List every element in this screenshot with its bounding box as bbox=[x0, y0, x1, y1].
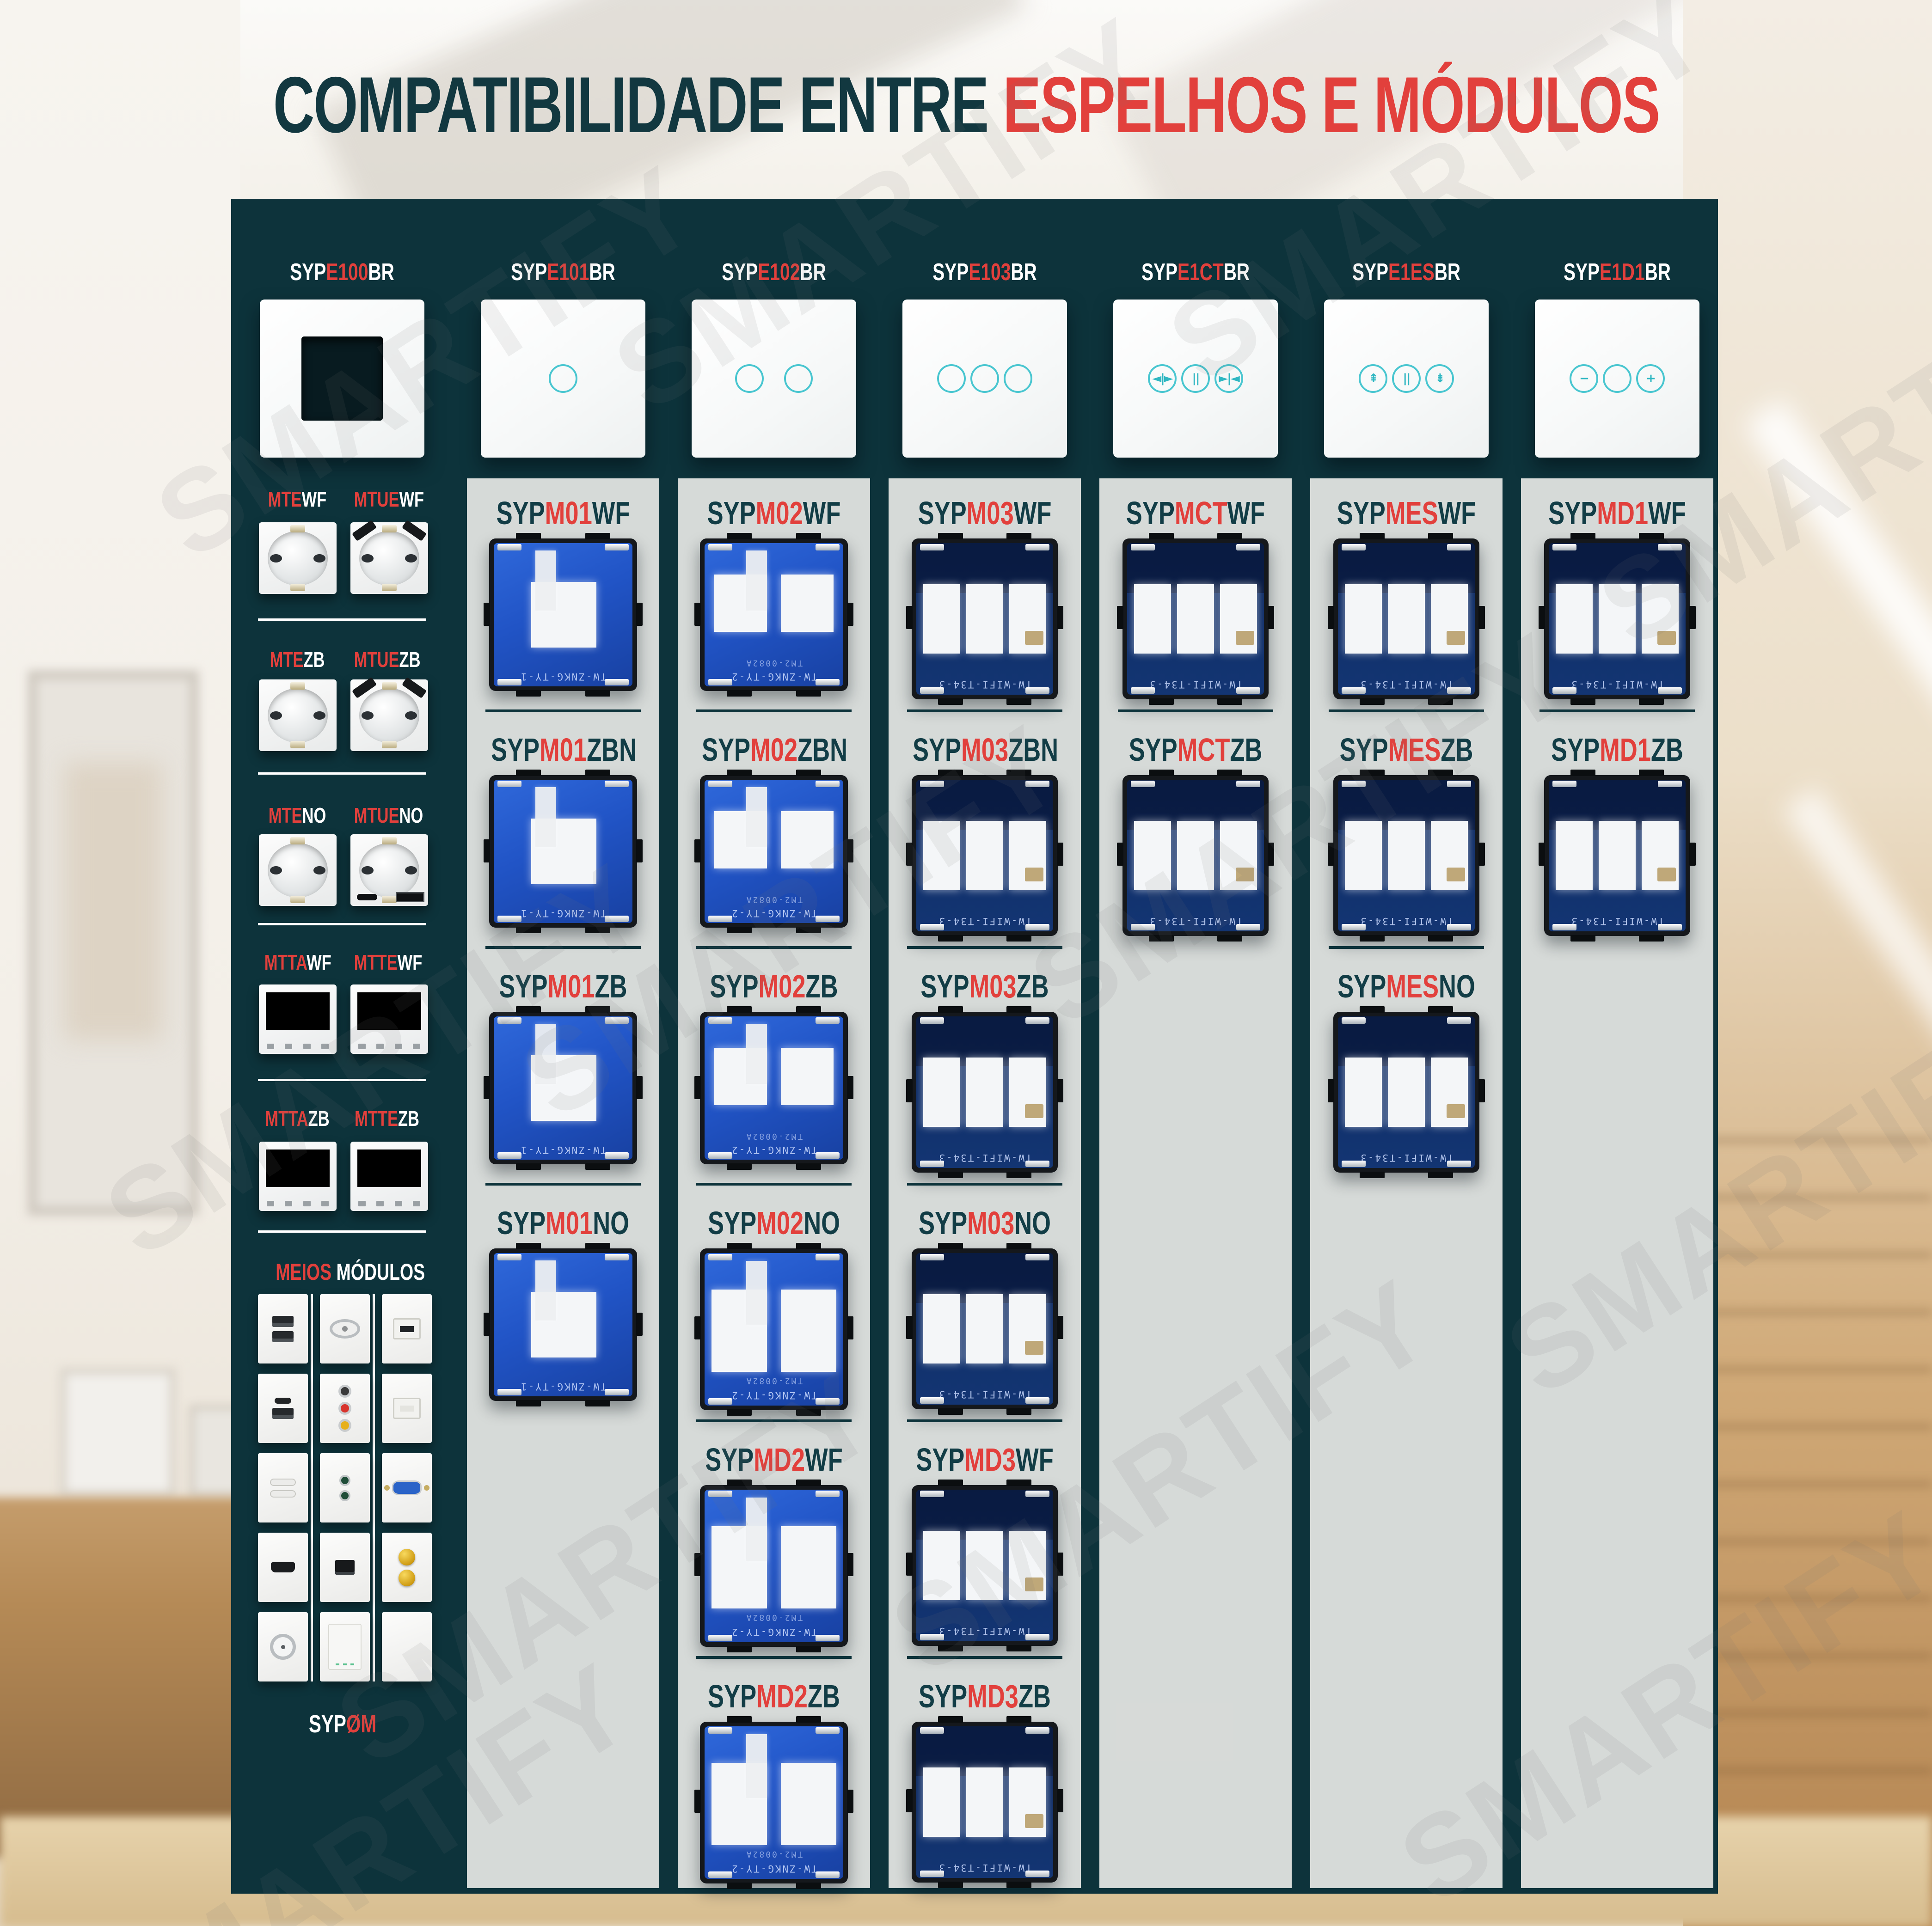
label-prefix: SYP bbox=[920, 968, 969, 1004]
pcb-mount-tab bbox=[484, 1313, 490, 1336]
faceplate-e100 bbox=[260, 300, 424, 458]
sidebar-label: MTUENO bbox=[354, 802, 420, 828]
pcb-corner-clip bbox=[816, 1635, 840, 1641]
pcb-corner-clip bbox=[920, 924, 944, 930]
touch-circle-icon bbox=[735, 364, 764, 393]
label-code: MTE bbox=[270, 648, 304, 672]
pcb-corner-clip bbox=[920, 1871, 944, 1877]
pcb-mount-tab bbox=[1006, 698, 1031, 705]
label-code: MD1 bbox=[1597, 495, 1648, 531]
label-prefix: SYP bbox=[722, 259, 758, 286]
label-code: E101 bbox=[547, 259, 589, 286]
thermostat-button-icon bbox=[285, 1044, 292, 1049]
module-column: SYPMESWFTW-WIFI-T34-3SYPMESZBTW-WIFI-T34… bbox=[1310, 478, 1503, 1888]
pcb-part-number: TM2-0082A bbox=[705, 658, 843, 668]
module-pcb-m02wf: TM2-0082ATW-ZNKG-TY-2 bbox=[700, 538, 848, 691]
touch-glyph-icon: || bbox=[1392, 364, 1421, 393]
pcb-corner-clip bbox=[1131, 924, 1155, 930]
pcb-corner-clip bbox=[920, 1491, 944, 1497]
module-label: SYPMD1WF bbox=[1545, 494, 1689, 532]
thermostat-button-icon bbox=[358, 1044, 366, 1049]
module-label: SYPM03ZBN bbox=[913, 731, 1057, 769]
pcb-corner-clip bbox=[1131, 687, 1155, 694]
label-prefix: SYP bbox=[290, 259, 326, 286]
pcb-mount-tab bbox=[1006, 1882, 1031, 1888]
pcb-corner-clip bbox=[816, 1491, 840, 1497]
touch-glyph-icon: + bbox=[1636, 364, 1665, 393]
pcb-white-pad bbox=[966, 1294, 1003, 1364]
pcb-corner-clip bbox=[920, 1254, 944, 1260]
pcb-mount-tab bbox=[1149, 533, 1174, 539]
label-suffix: ZB bbox=[1651, 732, 1683, 768]
pcb-mount-tab bbox=[1639, 698, 1664, 705]
label-prefix: SYP bbox=[1551, 732, 1600, 768]
pcb-mount-tab bbox=[938, 1243, 963, 1249]
thermostat-button-icon bbox=[376, 1201, 384, 1206]
faceplate-label: SYPE100BR bbox=[273, 258, 411, 287]
pcb-mount-tab bbox=[906, 1079, 913, 1102]
thermostat-button-icon bbox=[267, 1044, 274, 1049]
socket-pin-hole bbox=[313, 711, 325, 720]
row-separator bbox=[485, 1183, 641, 1186]
usb-c-port-icon bbox=[357, 894, 377, 900]
meios-modulos-title: MEIOS MÓDULOS bbox=[276, 1259, 410, 1285]
pcb-mount-tab bbox=[484, 1076, 490, 1099]
module-pcb-meswf: TW-WIFI-T34-3 bbox=[1333, 538, 1479, 699]
pcb-corner-clip bbox=[816, 544, 840, 550]
pcb-mount-tab bbox=[727, 533, 752, 539]
pcb-mount-tab bbox=[1268, 843, 1274, 866]
socket-pin-hole bbox=[362, 866, 374, 874]
label-suffix: WF bbox=[398, 950, 423, 974]
pcb-corner-clip bbox=[708, 1254, 732, 1260]
thermostat-buttons bbox=[267, 1044, 329, 1049]
minijack-icon bbox=[339, 1475, 350, 1486]
rca-video-icon bbox=[338, 1385, 351, 1398]
pcb-chip bbox=[1657, 631, 1676, 645]
pcb-corner-clip bbox=[1025, 1397, 1049, 1404]
label-prefix: SYP bbox=[1141, 259, 1178, 286]
pcb-corner-clip bbox=[1552, 687, 1576, 694]
module-column: SYPM01WFTW-ZNKG-TY-1SYPM01ZBNTW-ZNKG-TY-… bbox=[467, 478, 659, 1888]
label-code: MTTE bbox=[355, 1107, 398, 1131]
thermostat-button-icon bbox=[395, 1044, 402, 1049]
pcb-mount-tab bbox=[1217, 533, 1242, 539]
pcb-label-sticker bbox=[746, 1734, 767, 1798]
module-label: SYPM03WF bbox=[913, 494, 1057, 532]
pcb-mount-tab bbox=[1689, 843, 1696, 866]
pcb-corner-clip bbox=[1342, 544, 1366, 550]
pcb-mount-tab bbox=[938, 1716, 963, 1723]
faceplate-e1es: ⇞||⇟ bbox=[1324, 300, 1489, 458]
meios-tile-rca bbox=[320, 1374, 370, 1443]
sidebar-module-mtezb bbox=[259, 679, 337, 751]
pcb-mount-tab bbox=[727, 1480, 752, 1486]
label-code: M03 bbox=[961, 732, 1008, 768]
pcb-corner-clip bbox=[1236, 544, 1260, 550]
pcb-board: TW-WIFI-T34-3 bbox=[1549, 543, 1686, 695]
pcb-label-sticker bbox=[535, 550, 556, 611]
label-suffix: ZB bbox=[806, 968, 838, 1004]
thermostat-buttons bbox=[358, 1201, 420, 1206]
module-pcb-m03zb: TW-WIFI-T34-3 bbox=[912, 1012, 1058, 1173]
label-code: M02 bbox=[758, 968, 805, 1004]
pcb-mount-tab bbox=[1360, 935, 1385, 942]
pcb-mount-tab bbox=[1428, 770, 1453, 776]
pcb-corner-clip bbox=[1131, 544, 1155, 550]
row-separator bbox=[485, 709, 641, 712]
usb-a-icon bbox=[272, 1408, 294, 1419]
pcb-mount-tab bbox=[938, 1480, 963, 1486]
touch-glyph-icon: ◄|► bbox=[1148, 364, 1177, 393]
module-label: SYPM02WF bbox=[702, 494, 846, 532]
pcb-white-pad bbox=[923, 1531, 960, 1601]
pcb-white-pad bbox=[781, 1290, 836, 1372]
socket-pin-hole bbox=[270, 711, 282, 720]
sidebar-label: MTEZB bbox=[264, 647, 331, 673]
label-suffix: WF bbox=[302, 487, 327, 511]
pcb-board: TW-WIFI-T34-3 bbox=[1127, 543, 1264, 695]
label-code: MD1 bbox=[1600, 732, 1651, 768]
pcb-corner-clip bbox=[497, 679, 521, 685]
socket-pin-hole bbox=[270, 866, 282, 874]
pcb-mount-tab bbox=[1006, 1243, 1031, 1249]
label-code: E1CT bbox=[1178, 259, 1224, 286]
pcb-white-pad bbox=[1388, 1058, 1425, 1127]
pcb-label-sticker bbox=[746, 550, 767, 611]
thermostat-screen bbox=[357, 992, 421, 1030]
pcb-mount-tab bbox=[1570, 533, 1595, 539]
label-suffix: BR bbox=[368, 259, 394, 286]
label-prefix: SYP bbox=[1564, 259, 1600, 286]
label-suffix: WF bbox=[1648, 495, 1686, 531]
pcb-mount-tab bbox=[1217, 935, 1242, 942]
pcb-mount-tab bbox=[727, 1716, 752, 1723]
pcb-board: TW-WIFI-T34-3 bbox=[916, 1016, 1053, 1168]
label-code: M01 bbox=[545, 495, 592, 531]
label-code: MTTA bbox=[265, 1107, 308, 1131]
pcb-corner-clip bbox=[497, 1254, 521, 1260]
label-code: M01 bbox=[540, 732, 587, 768]
faceplate-e101 bbox=[481, 300, 645, 458]
pcb-mount-tab bbox=[727, 1163, 752, 1170]
label-prefix: SYP bbox=[705, 1442, 754, 1478]
pcb-corner-clip bbox=[605, 544, 629, 550]
switch-leds bbox=[336, 1663, 339, 1665]
rca-red-icon bbox=[338, 1402, 351, 1415]
page-title: COMPATIBILIDADE ENTRE ESPELHOS E MÓDULOS bbox=[273, 59, 1659, 151]
touch-glyph-icon: ►|◄ bbox=[1214, 364, 1243, 393]
pcb-corner-clip bbox=[1131, 781, 1155, 787]
pcb-board: TW-ZNKG-TY-1 bbox=[494, 1016, 632, 1160]
pcb-corner-clip bbox=[1552, 924, 1576, 930]
pcb-mount-tab bbox=[516, 690, 541, 697]
touch-zone-icons bbox=[481, 364, 645, 393]
module-pcb-m03no: TW-WIFI-T34-3 bbox=[912, 1248, 1058, 1409]
module-pcb-md3zb: TW-WIFI-T34-3 bbox=[912, 1722, 1058, 1883]
label-code: M03 bbox=[967, 1205, 1014, 1241]
pcb-board: TW-WIFI-T34-3 bbox=[916, 1490, 1053, 1641]
meios-divider bbox=[311, 1294, 313, 1681]
pcb-mount-tab bbox=[1328, 606, 1334, 629]
label-suffix: ZB bbox=[303, 648, 325, 672]
pcb-corner-clip bbox=[1025, 544, 1049, 550]
pcb-corner-clip bbox=[1025, 1161, 1049, 1167]
row-separator bbox=[907, 1419, 1062, 1422]
pcb-board: TM2-0082ATW-ZNKG-TY-2 bbox=[705, 1016, 843, 1160]
pcb-mount-tab bbox=[516, 1163, 541, 1170]
sidebar-label: MTEWF bbox=[264, 486, 331, 512]
module-pcb-m01no: TW-ZNKG-TY-1 bbox=[489, 1248, 637, 1401]
shaver-slot-icon bbox=[270, 1479, 296, 1486]
label-suffix: WF bbox=[805, 1442, 843, 1478]
touch-zone-icons: ⇞||⇟ bbox=[1324, 364, 1489, 393]
vga-icon bbox=[384, 1482, 429, 1494]
pcb-white-pad bbox=[1556, 584, 1593, 654]
touch-zone-icons: −+ bbox=[1535, 364, 1699, 393]
pcb-mount-tab bbox=[796, 770, 821, 776]
pcb-mount-tab bbox=[938, 770, 963, 776]
pcb-corner-clip bbox=[920, 1397, 944, 1404]
thermostat-screen bbox=[266, 1149, 330, 1187]
sidebar-label: MTUEWF bbox=[354, 486, 420, 512]
meios-tile-vga bbox=[382, 1453, 432, 1522]
pcb-mount-tab bbox=[585, 690, 610, 697]
tv-coax-icon bbox=[270, 1634, 296, 1660]
pcb-mount-tab bbox=[1117, 843, 1123, 866]
touch-glyph-icon: ⇞ bbox=[1359, 364, 1387, 393]
thermostat-button-icon bbox=[321, 1201, 329, 1206]
sidebar-separator bbox=[258, 923, 426, 925]
pcb-mount-tab bbox=[727, 927, 752, 933]
pcb-mount-tab bbox=[636, 1076, 643, 1099]
thermostat-buttons bbox=[358, 1044, 420, 1049]
pcb-label-sticker bbox=[746, 1261, 767, 1325]
pcb-mount-tab bbox=[1570, 698, 1595, 705]
label-prefix: SYP bbox=[708, 1205, 756, 1241]
bg-picture-art bbox=[65, 763, 162, 1040]
pcb-mount-tab bbox=[1006, 1006, 1031, 1013]
pcb-white-pad bbox=[966, 1058, 1003, 1127]
label-suffix: WF bbox=[1438, 495, 1476, 531]
label-prefix: SYP bbox=[919, 1678, 967, 1714]
label-code: MTE bbox=[268, 487, 302, 511]
row-separator bbox=[696, 1419, 852, 1422]
label-prefix: SYP bbox=[919, 1205, 967, 1241]
pcb-part-number: TM2-0082A bbox=[705, 1376, 843, 1386]
module-pcb-md2zb: TM2-0082ATW-ZNKG-TY-2 bbox=[700, 1722, 848, 1883]
meios-tile-minijack bbox=[320, 1453, 370, 1522]
pcb-white-pad bbox=[966, 1531, 1003, 1601]
pcb-mount-tab bbox=[1539, 606, 1545, 629]
usb-a-icon bbox=[272, 1331, 294, 1342]
label-prefix: SYP bbox=[918, 495, 967, 531]
pcb-mount-tab bbox=[1149, 935, 1174, 942]
label-suffix: ZBN bbox=[1008, 732, 1058, 768]
pcb-corner-clip bbox=[1447, 544, 1471, 550]
label-code: M03 bbox=[967, 495, 1014, 531]
minijack-icon bbox=[339, 1490, 350, 1501]
label-prefix: SYP bbox=[1126, 495, 1175, 531]
pcb-corner-clip bbox=[605, 1389, 629, 1395]
pcb-corner-clip bbox=[816, 679, 840, 685]
bg-stair-steps bbox=[1683, 1086, 1932, 1926]
pcb-board: TW-ZNKG-TY-1 bbox=[494, 543, 632, 686]
pcb-mount-tab bbox=[1639, 935, 1664, 942]
vga-screw-icon bbox=[384, 1485, 390, 1491]
sidebar-module-mttazb bbox=[259, 1142, 337, 1211]
pcb-white-pad bbox=[966, 821, 1003, 891]
pcb-mount-tab bbox=[1428, 1172, 1453, 1178]
pcb-chip bbox=[1236, 868, 1254, 881]
module-pcb-m03wf: TW-WIFI-T34-3 bbox=[912, 538, 1058, 699]
sat-connector-icon bbox=[399, 1549, 415, 1565]
pcb-corner-clip bbox=[497, 1017, 521, 1024]
label-code: MTUE bbox=[354, 648, 399, 672]
pcb-mount-tab bbox=[938, 1172, 963, 1178]
pcb-corner-clip bbox=[1236, 781, 1260, 787]
label-suffix: NO bbox=[302, 803, 326, 827]
pcb-mount-tab bbox=[906, 1316, 913, 1339]
sidebar-label: MTTAWF bbox=[264, 949, 331, 975]
sidebar-module-mttezb bbox=[350, 1142, 428, 1211]
pcb-board: TW-WIFI-T34-3 bbox=[1338, 780, 1475, 931]
label-code: MTTA bbox=[264, 950, 307, 974]
pcb-white-pad bbox=[923, 1767, 960, 1837]
socket-earth-clip bbox=[382, 584, 397, 591]
label-suffix: BR bbox=[589, 259, 615, 286]
usb-c-icon bbox=[275, 1398, 291, 1404]
pcb-corner-clip bbox=[1025, 1727, 1049, 1734]
thermostat-screen bbox=[357, 1149, 421, 1187]
pcb-mount-tab bbox=[636, 839, 643, 862]
sidebar-label: MTUEZB bbox=[354, 647, 420, 673]
pcb-board: TW-ZNKG-TY-1 bbox=[494, 1253, 632, 1396]
pcb-corner-clip bbox=[1552, 781, 1576, 787]
vga-port-icon bbox=[393, 1482, 420, 1494]
pcb-corner-clip bbox=[1552, 544, 1576, 550]
label-code: E1ES bbox=[1388, 259, 1435, 286]
pcb-mount-tab bbox=[1149, 770, 1174, 776]
pcb-corner-clip bbox=[816, 1727, 840, 1734]
sidebar-label: MTENO bbox=[264, 802, 331, 828]
pcb-chip bbox=[1025, 1814, 1043, 1828]
pcb-corner-clip bbox=[708, 544, 732, 550]
label-prefix: SYP bbox=[309, 1710, 346, 1738]
pcb-mount-tab bbox=[847, 1553, 853, 1576]
row-separator bbox=[907, 1656, 1062, 1659]
pcb-white-pad bbox=[923, 821, 960, 891]
pcb-chip bbox=[1447, 868, 1465, 881]
meios-tile-rj45-blank bbox=[382, 1374, 432, 1443]
label-prefix: SYP bbox=[511, 259, 547, 286]
label-suffix: ZB bbox=[1441, 732, 1473, 768]
pcb-mount-tab bbox=[1268, 606, 1274, 629]
label-code: E102 bbox=[758, 259, 800, 286]
pcb-chip bbox=[1025, 1341, 1043, 1355]
socket-earth-clip bbox=[290, 525, 305, 532]
label-code: MTE bbox=[269, 803, 302, 827]
infographic-page: COMPATIBILIDADE ENTRE ESPELHOS E MÓDULOS… bbox=[0, 0, 1932, 1926]
sidebar-module-mttawf bbox=[259, 984, 337, 1054]
pcb-mount-tab bbox=[938, 1882, 963, 1888]
label-suffix: ZB bbox=[398, 1107, 419, 1131]
sidebar-separator bbox=[258, 1079, 426, 1081]
pcb-corner-clip bbox=[1025, 1871, 1049, 1877]
label-prefix: SYP bbox=[932, 259, 969, 286]
module-label: SYPMD3ZB bbox=[913, 1677, 1057, 1715]
pcb-white-pad bbox=[781, 1763, 836, 1845]
pcb-white-pad bbox=[781, 811, 834, 868]
pcb-mount-tab bbox=[1057, 1316, 1063, 1339]
pcb-corner-clip bbox=[708, 1152, 732, 1159]
label-suffix: BR bbox=[1645, 259, 1671, 286]
pcb-mount-tab bbox=[1428, 533, 1453, 539]
pcb-chip bbox=[1447, 631, 1465, 645]
pcb-mount-tab bbox=[727, 1006, 752, 1013]
pcb-mount-tab bbox=[938, 533, 963, 539]
pcb-corner-clip bbox=[708, 1635, 732, 1641]
label-prefix: SYP bbox=[1129, 732, 1178, 768]
label-suffix: WF bbox=[1227, 495, 1265, 531]
pcb-corner-clip bbox=[708, 1398, 732, 1405]
pcb-board: TW-WIFI-T34-3 bbox=[916, 1253, 1053, 1405]
label-code: MD3 bbox=[967, 1678, 1018, 1714]
touch-circle-icon bbox=[937, 364, 966, 393]
socket-earth-clip bbox=[290, 837, 305, 844]
pcb-label-sticker bbox=[535, 787, 556, 847]
pcb-board: TM2-0082ATW-ZNKG-TY-2 bbox=[705, 543, 843, 686]
module-pcb-m01zbn: TW-ZNKG-TY-1 bbox=[489, 775, 637, 928]
label-prefix: SYP bbox=[702, 732, 750, 768]
pcb-corner-clip bbox=[920, 1161, 944, 1167]
thermostat-button-icon bbox=[376, 1044, 384, 1049]
pcb-mount-tab bbox=[694, 603, 701, 626]
label-code: E103 bbox=[969, 259, 1011, 286]
label-code: MCT bbox=[1178, 732, 1230, 768]
row-separator bbox=[907, 946, 1062, 949]
pcb-corner-clip bbox=[1025, 781, 1049, 787]
pcb-corner-clip bbox=[497, 1389, 521, 1395]
title-red: ESPELHOS E MÓDULOS bbox=[1003, 61, 1659, 149]
socket-earth-clip bbox=[382, 896, 397, 903]
meios-tile-hdmi bbox=[258, 1533, 308, 1602]
label-suffix: ZB bbox=[1017, 968, 1049, 1004]
pcb-mount-tab bbox=[1006, 1645, 1031, 1651]
faceplate-label: SYPE1ESBR bbox=[1337, 258, 1476, 287]
pcb-chip bbox=[1025, 1104, 1043, 1118]
pcb-mount-tab bbox=[906, 1553, 913, 1576]
pcb-corner-clip bbox=[1025, 1017, 1049, 1024]
row-separator bbox=[1329, 946, 1484, 949]
module-label: SYPM02ZBN bbox=[702, 731, 846, 769]
label-suffix: NO bbox=[593, 1205, 629, 1241]
label-code: MTTE bbox=[354, 950, 398, 974]
label-suffix: NO bbox=[399, 803, 423, 827]
row-separator bbox=[696, 946, 852, 949]
pcb-corner-clip bbox=[920, 781, 944, 787]
row-separator bbox=[1118, 709, 1273, 712]
pcb-white-pad bbox=[1345, 584, 1382, 654]
touch-circle-icon bbox=[970, 364, 999, 393]
label-code: E1D1 bbox=[1600, 259, 1645, 286]
label-prefix: SYP bbox=[710, 968, 758, 1004]
socket-pin-hole bbox=[313, 554, 325, 563]
sidebar-module-mtueno bbox=[350, 834, 428, 906]
touch-circle-icon bbox=[784, 364, 813, 393]
pcb-mount-tab bbox=[1360, 1006, 1385, 1013]
pcb-mount-tab bbox=[1570, 935, 1595, 942]
